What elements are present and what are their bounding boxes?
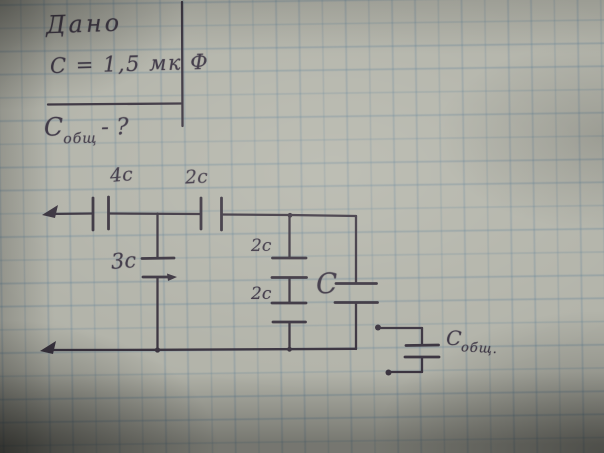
question-symbol: C: [44, 112, 64, 141]
question-mark: - ?: [101, 114, 129, 140]
label-capacitor-2c-mid-lower: 2c: [251, 286, 271, 303]
label-capacitor-3c: 3c: [110, 250, 137, 273]
label-total-capacitance: Cобщ.: [445, 328, 499, 357]
left-arrow-tick: [40, 341, 56, 354]
bottom-wire: [40, 341, 356, 354]
terminal-dot-bottom: [386, 370, 392, 376]
given-equation: C = 1,5 мк Ф: [50, 52, 210, 77]
label-capacitor-c: C: [316, 270, 338, 299]
branch-c: [335, 216, 378, 349]
notebook-photo: Дано C = 1,5 мк Ф Cобщ- ? 4c 2c 3c 2c 2c…: [0, 0, 604, 453]
top-wire: [42, 205, 356, 218]
capacitor-2c-top: [201, 198, 222, 230]
total-symbol: C: [446, 326, 463, 351]
label-capacitor-4c: 4c: [109, 165, 133, 186]
total-capacitor: [375, 325, 439, 376]
left-arrow-tick: [42, 205, 58, 218]
total-subscript: общ.: [461, 340, 499, 357]
label-capacitor-2c-mid-upper: 2c: [251, 238, 271, 255]
plate-arrow-tick: [167, 274, 177, 282]
branch-3c: [142, 214, 177, 353]
branch-2c-2c: [272, 215, 307, 352]
given-title: Дано: [46, 11, 123, 38]
label-capacitor-2c-top: 2c: [185, 167, 209, 187]
capacitor-4c: [93, 197, 109, 230]
question-subscript: общ: [63, 131, 97, 148]
question-line: Cобщ- ?: [44, 113, 129, 146]
